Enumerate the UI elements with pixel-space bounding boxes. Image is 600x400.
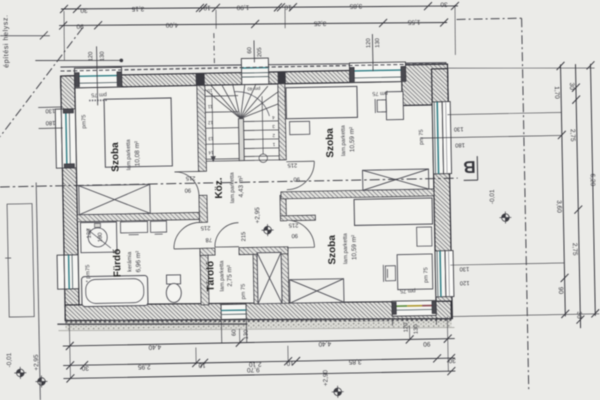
svg-text:10,08 m²: 10,08 m² xyxy=(134,141,141,166)
svg-text:215: 215 xyxy=(201,224,211,230)
svg-text:215: 215 xyxy=(241,232,247,242)
svg-text:180: 180 xyxy=(98,232,104,242)
svg-text:12: 12 xyxy=(208,120,214,125)
svg-text:14: 14 xyxy=(208,150,214,155)
svg-text:10: 10 xyxy=(286,359,294,366)
svg-text:-0,01: -0,01 xyxy=(489,189,496,204)
svg-text:11: 11 xyxy=(207,104,212,109)
svg-text:kerámia: kerámia xyxy=(127,251,133,272)
svg-text:+2,95: +2,95 xyxy=(33,354,40,371)
svg-text:2,75: 2,75 xyxy=(569,129,576,142)
svg-text:pm 75: pm 75 xyxy=(419,129,425,145)
svg-text:180: 180 xyxy=(455,141,465,147)
svg-text:10: 10 xyxy=(198,361,206,368)
svg-text:30: 30 xyxy=(448,357,456,364)
svg-text:120: 120 xyxy=(366,38,372,48)
svg-text:3,60: 3,60 xyxy=(555,200,562,213)
svg-text:215: 215 xyxy=(289,222,299,228)
svg-text:6,20: 6,20 xyxy=(589,173,596,186)
svg-text:9,70: 9,70 xyxy=(247,366,260,373)
svg-text:130: 130 xyxy=(87,229,93,239)
svg-text:pm 75: pm 75 xyxy=(372,90,388,96)
svg-text:pm 75: pm 75 xyxy=(241,284,247,300)
svg-text:* pm75: * pm75 xyxy=(85,265,91,283)
svg-text:120: 120 xyxy=(403,323,409,333)
svg-text:10: 10 xyxy=(203,4,211,11)
svg-text:1,90: 1,90 xyxy=(236,4,249,11)
svg-text:4,40: 4,40 xyxy=(148,343,161,350)
svg-text:+2,95: +2,95 xyxy=(254,207,261,224)
svg-text:B: B xyxy=(463,157,476,176)
svg-text:3,85: 3,85 xyxy=(348,358,361,365)
svg-text:4,40: 4,40 xyxy=(318,340,331,347)
svg-text:90: 90 xyxy=(557,287,564,295)
svg-text:90: 90 xyxy=(291,232,298,238)
svg-text:pm 75: pm 75 xyxy=(400,287,416,293)
svg-text:1,70: 1,70 xyxy=(553,86,560,99)
svg-text:10,59 m²: 10,59 m² xyxy=(351,235,358,260)
svg-text:2,75 m²: 2,75 m² xyxy=(226,265,233,287)
svg-text:4,00: 4,00 xyxy=(165,21,178,28)
svg-text:10: 10 xyxy=(284,3,292,10)
svg-text:78: 78 xyxy=(205,236,212,242)
svg-text:Köz.: Köz. xyxy=(214,177,225,199)
svg-text:Szoba: Szoba xyxy=(325,128,337,158)
svg-text:pm 75: pm 75 xyxy=(423,267,429,283)
svg-text:120: 120 xyxy=(460,279,470,285)
svg-text:130: 130 xyxy=(45,107,55,113)
svg-text:pm 40: pm 40 xyxy=(247,86,260,91)
svg-text:építési helysz.: építési helysz. xyxy=(2,14,10,67)
svg-text:pm75: pm75 xyxy=(81,115,87,129)
svg-text:lam.parketta: lam.parketta xyxy=(341,124,348,156)
svg-text:Szoba: Szoba xyxy=(327,235,339,265)
svg-text:+2,90: +2,90 xyxy=(322,369,329,386)
svg-text:4,43 m²: 4,43 m² xyxy=(238,176,245,198)
svg-text:pm 75: pm 75 xyxy=(91,91,107,97)
svg-text:120: 120 xyxy=(88,52,94,62)
svg-text:lam.parketta: lam.parketta xyxy=(126,138,133,170)
svg-text:130: 130 xyxy=(375,38,381,48)
svg-text:lam.parketta: lam.parketta xyxy=(343,232,350,264)
svg-text:6,96 m²: 6,96 m² xyxy=(135,251,142,273)
svg-text:-0,01: -0,01 xyxy=(6,352,13,367)
svg-text:180: 180 xyxy=(46,119,56,125)
svg-text:30: 30 xyxy=(440,0,448,7)
svg-text:30: 30 xyxy=(81,364,89,371)
svg-text:3,25: 3,25 xyxy=(313,19,326,26)
svg-text:2,75: 2,75 xyxy=(571,243,578,256)
svg-text:Szoba: Szoba xyxy=(110,142,122,172)
svg-text:2,95: 2,95 xyxy=(137,363,150,370)
svg-text:205: 205 xyxy=(257,47,263,57)
svg-text:90: 90 xyxy=(76,22,84,29)
svg-text:215: 215 xyxy=(287,162,297,168)
svg-text:130: 130 xyxy=(454,125,464,131)
svg-text:215: 215 xyxy=(186,174,196,180)
svg-text:10: 10 xyxy=(207,88,213,93)
svg-text:30: 30 xyxy=(80,6,88,13)
svg-text:1,55: 1,55 xyxy=(407,18,420,25)
svg-text:3,15: 3,15 xyxy=(131,5,144,12)
svg-text:lam.parketta: lam.parketta xyxy=(229,171,236,203)
svg-text:13: 13 xyxy=(208,136,214,141)
svg-text:30: 30 xyxy=(568,83,575,91)
svg-text:130: 130 xyxy=(413,324,419,334)
svg-text:30: 30 xyxy=(575,311,582,319)
svg-text:3,85: 3,85 xyxy=(349,2,362,9)
svg-text:60: 60 xyxy=(247,47,253,54)
svg-text:130: 130 xyxy=(459,265,469,271)
svg-text:90: 90 xyxy=(293,175,300,181)
svg-text:Fürdő: Fürdő xyxy=(112,249,124,278)
svg-text:90: 90 xyxy=(185,187,192,193)
svg-text:90: 90 xyxy=(423,340,431,347)
svg-text:lam.parketta: lam.parketta xyxy=(219,260,226,292)
svg-text:60: 60 xyxy=(232,329,238,336)
svg-text:Tároló: Tároló xyxy=(205,261,217,292)
svg-text:10,59 m²: 10,59 m² xyxy=(349,127,356,152)
svg-text:130: 130 xyxy=(100,51,106,61)
